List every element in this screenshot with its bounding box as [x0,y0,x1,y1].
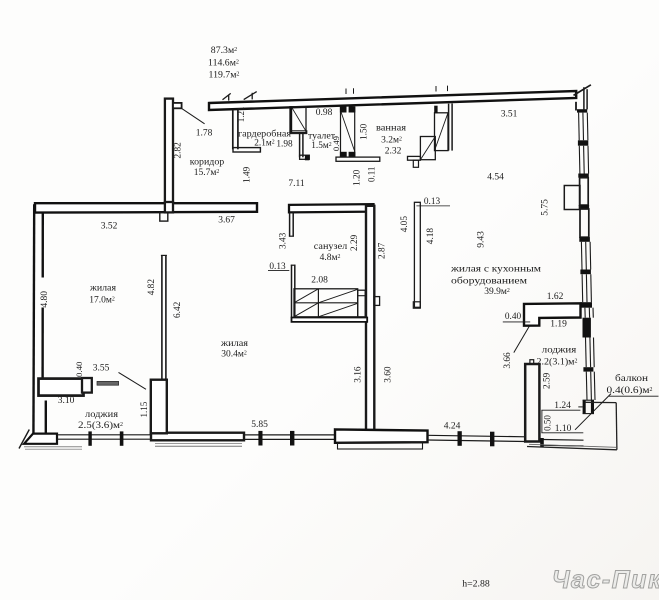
svg-text:3.16: 3.16 [353,366,363,383]
svg-text:лоджия: лоджия [542,345,577,356]
svg-text:4.54: 4.54 [487,173,504,183]
svg-text:1.98: 1.98 [276,140,293,150]
svg-text:лоджия: лоджия [85,409,119,420]
svg-text:5.75: 5.75 [541,199,551,216]
svg-text:ванная: ванная [376,123,407,134]
svg-text:2.87: 2.87 [377,242,387,259]
svg-text:3.52: 3.52 [101,221,118,231]
svg-text:жилая: жилая [89,282,116,293]
svg-text:6.42: 6.42 [173,301,183,318]
svg-text:114.6м2: 114.6м2 [208,57,239,68]
svg-text:2.5(3.6)м2: 2.5(3.6)м2 [78,420,123,431]
svg-text:4.05: 4.05 [400,216,410,233]
svg-text:жилая с кухонным: жилая с кухонным [450,263,541,274]
svg-text:119.7м2: 119.7м2 [209,70,240,81]
svg-text:0.13: 0.13 [269,262,286,272]
svg-text:4.80: 4.80 [40,291,50,308]
svg-text:1.62: 1.62 [547,292,564,302]
svg-text:17.0м2: 17.0м2 [89,295,115,305]
svg-text:4.8м2: 4.8м2 [320,253,341,263]
svg-text:коридор: коридор [190,157,225,168]
svg-text:1.15: 1.15 [139,401,149,417]
svg-text:2.82: 2.82 [173,142,183,159]
svg-text:3.51: 3.51 [501,110,518,120]
svg-text:15.7м2: 15.7м2 [194,168,220,178]
svg-text:0.49: 0.49 [331,136,341,151]
svg-text:1.50: 1.50 [359,123,369,140]
svg-text:1.19: 1.19 [550,320,567,330]
svg-text:1.21: 1.21 [236,107,246,123]
svg-text:4.18: 4.18 [426,228,436,245]
svg-text:2.2(3.1)м2: 2.2(3.1)м2 [537,357,578,368]
svg-text:1.78: 1.78 [196,129,213,139]
svg-text:h=2.88: h=2.88 [462,578,490,589]
svg-text:балкон: балкон [615,373,649,384]
svg-text:оборудованием: оборудованием [451,276,527,287]
svg-text:87.3м2: 87.3м2 [211,45,237,56]
svg-text:0.13: 0.13 [424,197,441,207]
svg-text:3.67: 3.67 [218,215,235,225]
svg-text:3.66: 3.66 [503,352,513,369]
svg-text:1.10: 1.10 [555,424,572,434]
svg-text:30.4м2: 30.4м2 [221,350,247,360]
svg-text:0.11: 0.11 [367,167,377,182]
svg-text:4.82: 4.82 [147,279,157,296]
svg-text:1.49: 1.49 [242,166,252,183]
svg-text:39.9м2: 39.9м2 [484,287,510,297]
svg-text:3.55: 3.55 [93,364,110,374]
svg-text:2.29: 2.29 [350,234,360,251]
svg-text:0.40: 0.40 [505,312,522,322]
svg-text:1.5м2: 1.5м2 [311,141,332,151]
svg-text:2.59: 2.59 [542,372,552,389]
svg-text:2.1м2: 2.1м2 [254,139,275,149]
svg-text:4.24: 4.24 [444,422,461,432]
svg-text:жилая: жилая [220,338,249,349]
svg-text:санузел: санузел [314,241,348,252]
svg-text:5.85: 5.85 [251,420,268,430]
svg-text:1.20: 1.20 [353,169,363,186]
svg-text:0.4(0.6)м2: 0.4(0.6)м2 [607,385,653,396]
svg-text:0.98: 0.98 [316,108,333,118]
svg-text:3.60: 3.60 [383,366,393,383]
svg-text:0.50: 0.50 [542,415,552,431]
svg-text:2.32: 2.32 [385,146,402,156]
svg-text:3.10: 3.10 [58,396,75,406]
svg-text:7.11: 7.11 [288,179,305,189]
svg-text:3.43: 3.43 [278,232,288,249]
svg-text:9.43: 9.43 [477,231,487,248]
svg-text:2.08: 2.08 [311,276,328,286]
svg-text:3.2м2: 3.2м2 [381,135,402,145]
svg-text:1.24: 1.24 [554,401,571,411]
svg-text:Час-Пик: Час-Пик [552,566,659,594]
svg-text:0.40: 0.40 [74,361,84,377]
